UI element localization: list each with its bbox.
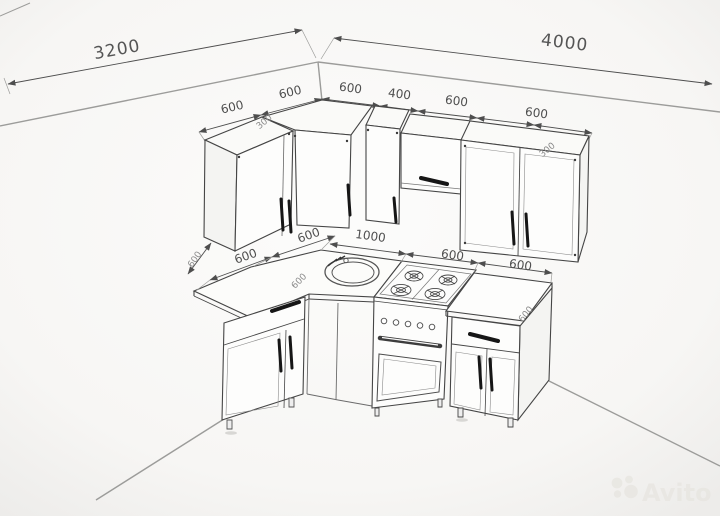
dim-label-upper-6: 600 (524, 105, 549, 122)
dim-label-upper-5: 600 (444, 93, 469, 110)
dim-label-upper-4: 400 (387, 86, 412, 103)
dim-label-upper-3: 600 (338, 80, 363, 97)
kitchen-drawing: 3200 4000 600 600 600 400 600 600 (0, 0, 720, 516)
kitchen-plan-screenshot: 3200 4000 600 600 600 400 600 600 (0, 0, 720, 516)
upper-cabinet-double (460, 121, 589, 262)
avito-watermark-text: Avito (642, 479, 712, 507)
